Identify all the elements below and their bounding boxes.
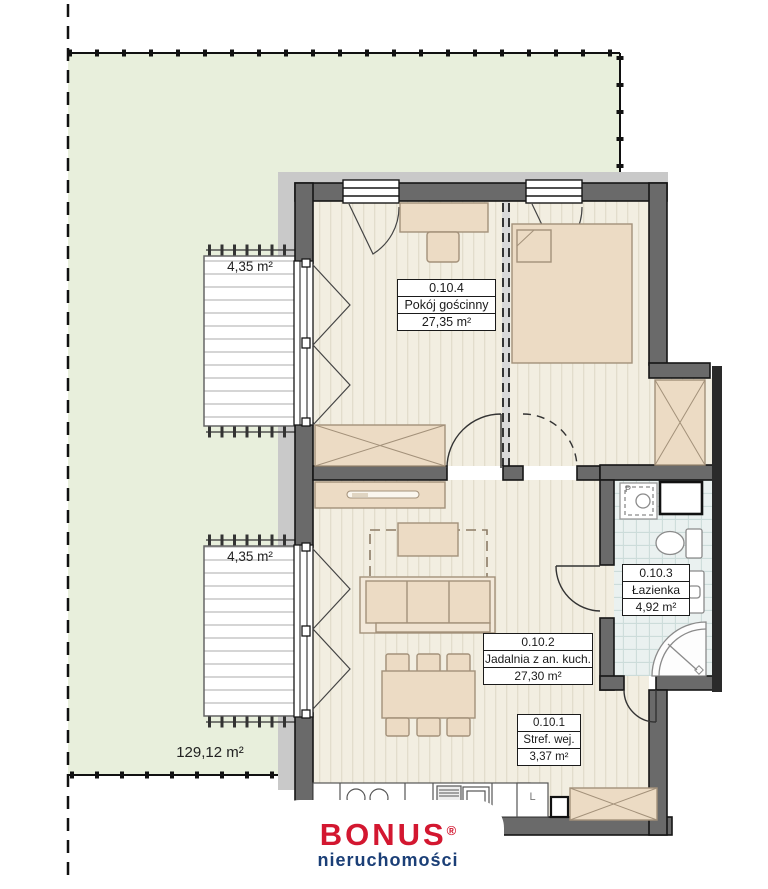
floor-plan-canvas: 0.10.4 Pokój gościnny 27,35 m² 0.10.2 Ja… <box>0 0 768 889</box>
room-name: Jadalnia z an. kuch. <box>484 650 592 667</box>
room-id: 0.10.3 <box>623 565 689 581</box>
dining-chair <box>386 654 409 672</box>
room-id: 0.10.2 <box>484 634 592 650</box>
dining-chair <box>386 718 409 736</box>
terrace-1 <box>204 250 296 432</box>
room-label-guest-room: 0.10.4 Pokój gościnny 27,35 m² <box>397 279 496 331</box>
room-id: 0.10.1 <box>518 715 580 731</box>
room-id: 0.10.4 <box>398 280 495 296</box>
dining-chair <box>447 718 470 736</box>
terrace-2 <box>204 540 296 722</box>
room-area: 3,37 m² <box>518 748 580 765</box>
wardrobe-nook <box>655 380 705 465</box>
brand-text: BONUS <box>320 817 447 852</box>
party-wall-thin <box>712 366 722 692</box>
room-name: Pokój gościnny <box>398 296 495 313</box>
fridge-label: L <box>517 791 548 803</box>
desk <box>400 203 488 232</box>
shaft-niche <box>660 482 702 514</box>
entry-door <box>551 797 568 817</box>
bed-pillow <box>517 230 551 262</box>
room-label-dining: 0.10.2 Jadalnia z an. kuch. 27,30 m² <box>483 633 593 685</box>
wardrobe-guest <box>315 425 445 466</box>
dining-chair <box>447 654 470 672</box>
agency-logo-card: BONUS® nieruchomości <box>272 800 504 889</box>
room-area: 27,35 m² <box>398 313 495 330</box>
dining-set <box>382 654 475 736</box>
dining-chair <box>417 654 440 672</box>
floor-plan-drawing <box>0 0 768 889</box>
room-area: 4,92 m² <box>623 598 689 615</box>
dining-chair <box>417 718 440 736</box>
dining-table <box>382 671 475 718</box>
room-name: Stref. wej. <box>518 731 580 748</box>
living-room-floor <box>313 480 649 817</box>
room-label-entry: 0.10.1 Stref. wej. 3,37 m² <box>517 714 581 766</box>
garden-area-label: 129,12 m² <box>150 744 270 761</box>
room-label-bathroom: 0.10.3 Łazienka 4,92 m² <box>622 564 690 616</box>
room-area: 27,30 m² <box>484 667 592 684</box>
coffee-table <box>398 523 458 556</box>
washer-label: P <box>625 484 631 494</box>
terrace-1-area-label: 4,35 m² <box>204 259 296 274</box>
guest-room-partition-dashed <box>502 201 510 466</box>
agency-logo-brand: BONUS® <box>272 815 504 851</box>
registered-mark: ® <box>447 823 457 838</box>
agency-logo-subtitle: nieruchomości <box>272 851 504 870</box>
terrace-2-area-label: 4,35 m² <box>204 549 296 564</box>
sofa <box>360 577 495 633</box>
room-name: Łazienka <box>623 581 689 598</box>
wardrobe-entry <box>570 788 657 820</box>
desk-chair <box>427 232 459 262</box>
